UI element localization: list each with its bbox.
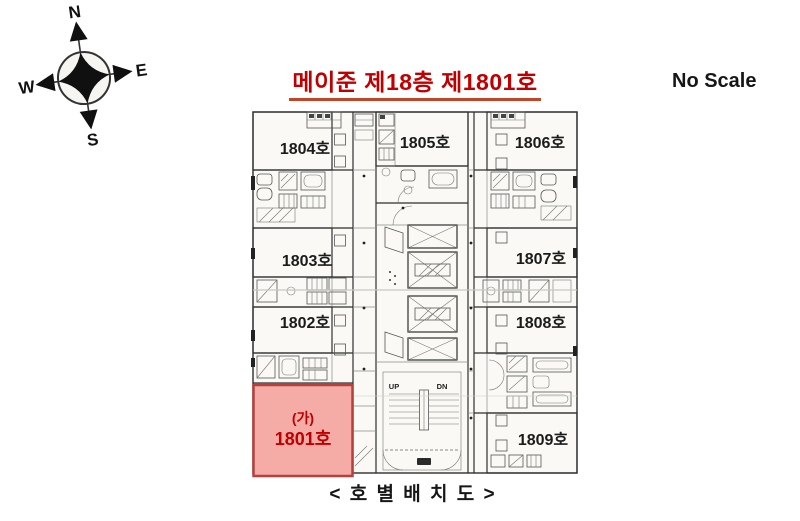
plan-caption: < 호 별 배 치 도 > [243, 479, 583, 506]
compass-rose: N E W S [14, 4, 154, 149]
compass-west-label: W [18, 77, 37, 98]
document-page: N E W S 메이준 제18층 제1801호 No Scale [0, 0, 800, 521]
unit-1801-mark: (가) [292, 410, 314, 426]
stairs-down-label: DN [437, 382, 448, 391]
compass-east-label: E [135, 60, 149, 80]
unit-1805-label: 1805호 [400, 134, 451, 152]
page-title: 메이준 제18층 제1801호 [250, 63, 580, 101]
west-arrow-icon [34, 73, 55, 93]
south-arrow-icon [80, 109, 100, 130]
no-scale-label: No Scale [672, 70, 756, 93]
unit-1801-label: 1801호 [275, 429, 332, 449]
unit-1808-label: 1808호 [516, 314, 567, 332]
compass-svg: N E W S [14, 4, 154, 149]
floor-plan-svg: UP DN [243, 106, 583, 478]
unit-1807-label: 1807호 [516, 250, 567, 268]
floor-plan: UP DN [243, 106, 583, 478]
unit-1809-label: 1809호 [518, 431, 569, 449]
stairs-up-label: UP [389, 382, 399, 391]
unit-1801-highlight: (가) 1801호 [254, 385, 353, 476]
compass-north-label: N [67, 4, 82, 22]
unit-1802-label: 1802호 [280, 314, 331, 332]
unit-1803-label: 1803호 [282, 252, 333, 270]
page-title-text: 메이준 제18층 제1801호 [289, 63, 540, 101]
stair-door-mark [417, 458, 431, 465]
unit-1804-label: 1804호 [280, 140, 331, 158]
compass-south-label: S [86, 130, 100, 149]
east-arrow-icon [112, 62, 133, 82]
compass-graphic: N E W S [14, 4, 154, 149]
north-arrow-icon [67, 20, 87, 41]
unit-1806-label: 1806호 [515, 134, 566, 152]
